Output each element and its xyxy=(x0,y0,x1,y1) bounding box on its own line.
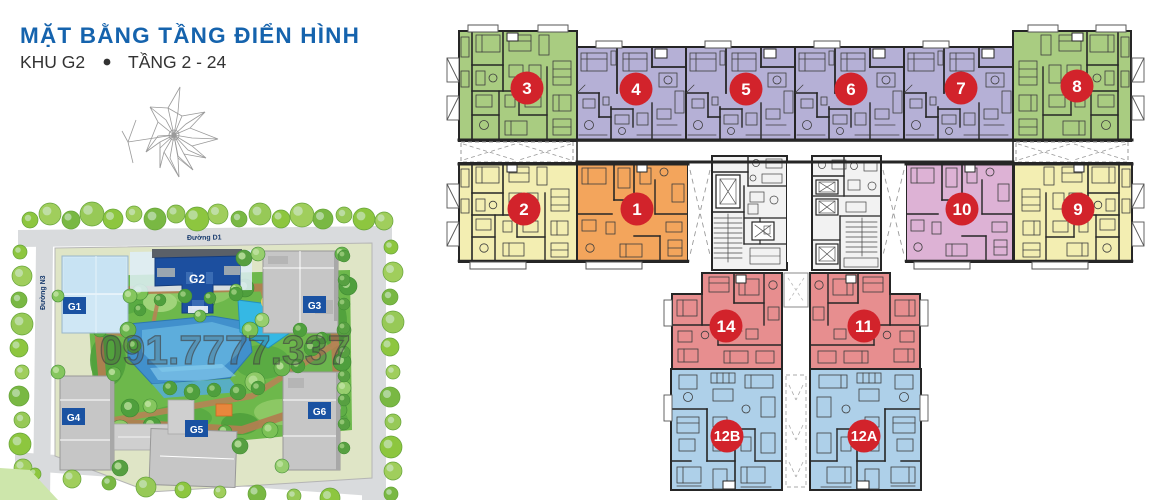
svg-text:11: 11 xyxy=(855,317,873,336)
svg-text:14: 14 xyxy=(717,317,736,336)
svg-text:G5: G5 xyxy=(190,425,204,436)
svg-text:2: 2 xyxy=(519,200,528,219)
svg-text:3: 3 xyxy=(522,79,531,98)
svg-text:091.7777.337: 091.7777.337 xyxy=(100,327,351,373)
svg-text:TẦNG 2 - 24: TẦNG 2 - 24 xyxy=(128,51,226,72)
svg-text:12B: 12B xyxy=(714,429,741,445)
svg-text:9: 9 xyxy=(1073,200,1082,219)
svg-text:5: 5 xyxy=(741,80,750,99)
svg-text:7: 7 xyxy=(956,79,965,98)
svg-text:6: 6 xyxy=(846,80,855,99)
svg-text:G4: G4 xyxy=(67,413,81,424)
svg-text:1: 1 xyxy=(632,200,641,219)
svg-text:12A: 12A xyxy=(851,429,878,445)
svg-text:Đường N3: Đường N3 xyxy=(40,275,47,310)
svg-text:KHU G2: KHU G2 xyxy=(20,52,85,72)
svg-text:4: 4 xyxy=(631,80,641,99)
svg-text:G3: G3 xyxy=(308,301,322,312)
svg-text:MẶT BẰNG TẦNG ĐIỂN HÌNH: MẶT BẰNG TẦNG ĐIỂN HÌNH xyxy=(20,23,360,48)
svg-text:8: 8 xyxy=(1072,77,1081,96)
svg-text:G1: G1 xyxy=(68,302,82,313)
svg-text:G2: G2 xyxy=(189,272,205,286)
svg-text:10: 10 xyxy=(953,200,972,219)
svg-text:G6: G6 xyxy=(313,407,327,418)
svg-text:Đường D1: Đường D1 xyxy=(187,234,222,241)
